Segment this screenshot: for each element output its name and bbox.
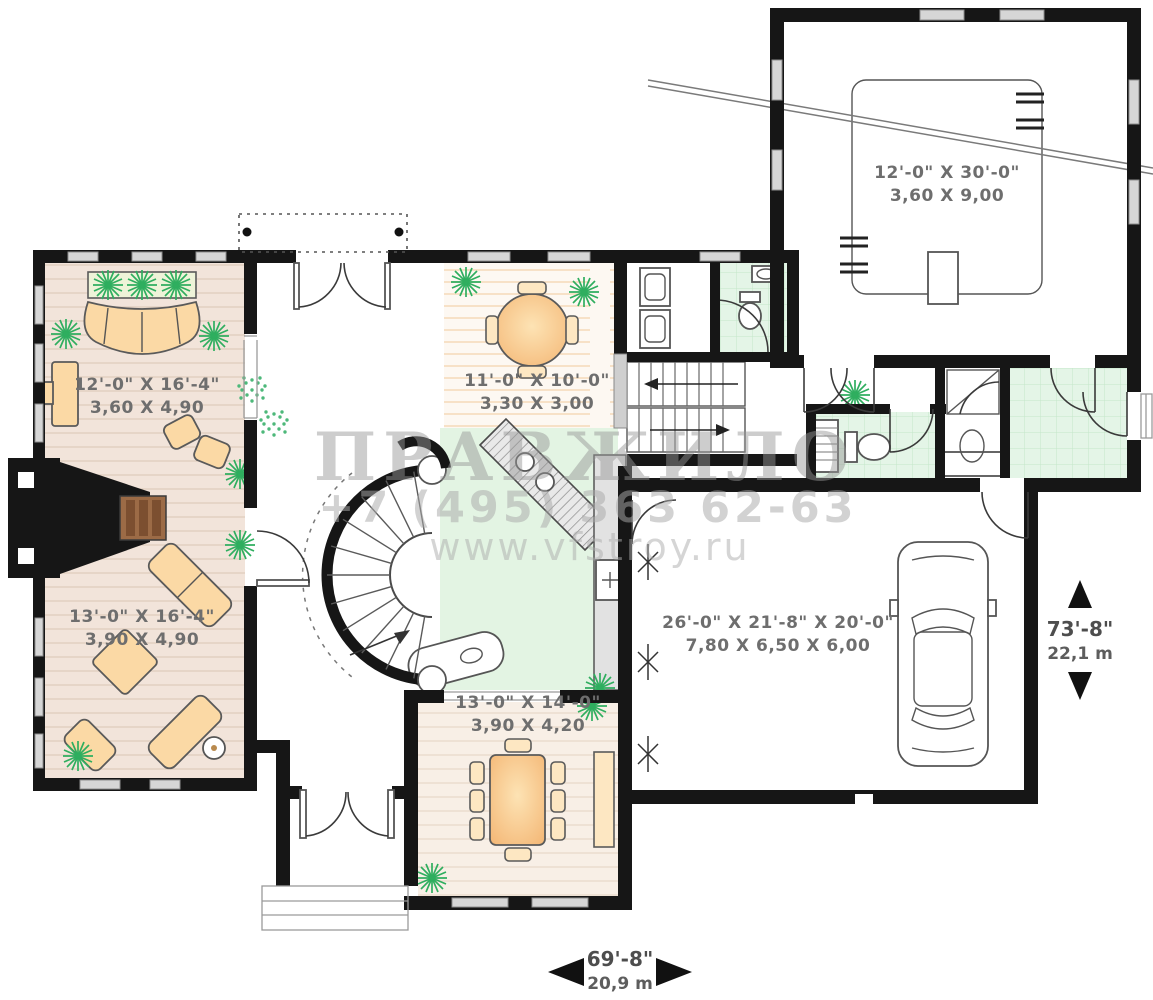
label-dining-imperial: 13'-0" X 14'-0" <box>455 693 601 713</box>
sideboard <box>594 752 614 847</box>
car <box>898 542 988 766</box>
label-bonus-imperial: 12'-0" X 30'-0" <box>874 163 1020 183</box>
watermark-site: www.vfstroy.ru <box>429 525 750 569</box>
chair <box>551 818 565 840</box>
label-garage-imperial: 26'-0" X 21'-8" X 20'-0" <box>662 613 894 633</box>
roof-break-line <box>648 80 1153 174</box>
chair <box>470 818 484 840</box>
chimney <box>928 252 958 304</box>
dimension-height: 73'-8" 22,1 m <box>1047 580 1114 700</box>
dining-table <box>490 755 545 845</box>
car-mirror <box>988 600 996 616</box>
toilet-tank <box>740 292 760 302</box>
plant-icon <box>93 270 123 300</box>
label-dining-metric: 3,90 X 4,20 <box>471 716 585 736</box>
arrow-left-icon <box>548 958 584 986</box>
label-bonus-metric: 3,60 X 9,00 <box>890 186 1004 206</box>
label-living-upper-metric: 3,60 X 4,90 <box>90 398 204 418</box>
dimension-width: 69'-8" 20,9 m <box>548 947 692 994</box>
newel-post <box>418 666 446 694</box>
height-metric: 22,1 m <box>1047 644 1113 664</box>
arrow-down-icon <box>1068 672 1092 700</box>
chair <box>551 790 565 812</box>
width-metric: 20,9 m <box>587 974 653 994</box>
chair <box>505 739 531 752</box>
vanity-counter <box>942 452 1002 476</box>
label-living-upper-imperial: 12'-0" X 16'-4" <box>74 375 220 395</box>
toilet-bowl <box>858 434 890 460</box>
stair-direction-arrow <box>394 630 410 644</box>
floor-plan-drawing: 12'-0" X 16'-4" 3,60 X 4,90 11'-0" X 10'… <box>0 0 1153 1000</box>
outdoor-elements <box>239 214 1152 930</box>
label-living-lower-imperial: 13'-0" X 16'-4" <box>69 607 215 627</box>
chair <box>470 762 484 784</box>
garage-contents <box>638 542 996 772</box>
label-living-lower-metric: 3,90 X 4,90 <box>85 630 199 650</box>
label-garage-metric: 7,80 X 6,50 X 6,00 <box>686 636 871 656</box>
plant-icon <box>127 270 157 300</box>
post-marks <box>638 544 658 772</box>
front-porch-steps <box>262 886 408 930</box>
width-imperial: 69'-8" <box>587 947 654 971</box>
rear-deck-outline <box>239 214 407 252</box>
plant-icon <box>161 270 191 300</box>
desk-chair <box>44 382 53 404</box>
chair <box>518 282 546 294</box>
height-imperial: 73'-8" <box>1047 617 1114 641</box>
arrow-up-icon <box>1068 580 1092 608</box>
floor-plan-page: 12'-0" X 16'-4" 3,60 X 4,90 11'-0" X 10'… <box>0 0 1153 1000</box>
floor-entry-tile <box>1007 368 1127 478</box>
joist-hangers <box>840 94 1044 272</box>
chair <box>470 790 484 812</box>
watermark: ПРАВЖИЛО +7 (495) 363 62-63 www.vfstroy.… <box>314 418 858 569</box>
chair <box>486 316 498 344</box>
chair <box>566 316 578 344</box>
round-table <box>496 294 568 366</box>
label-breakfast-imperial: 11'-0" X 10'-0" <box>464 371 610 391</box>
arrow-right-icon <box>656 958 692 986</box>
label-breakfast-metric: 3,30 X 3,00 <box>480 394 594 414</box>
chair <box>551 762 565 784</box>
table-center <box>211 745 217 751</box>
chair <box>505 848 531 861</box>
